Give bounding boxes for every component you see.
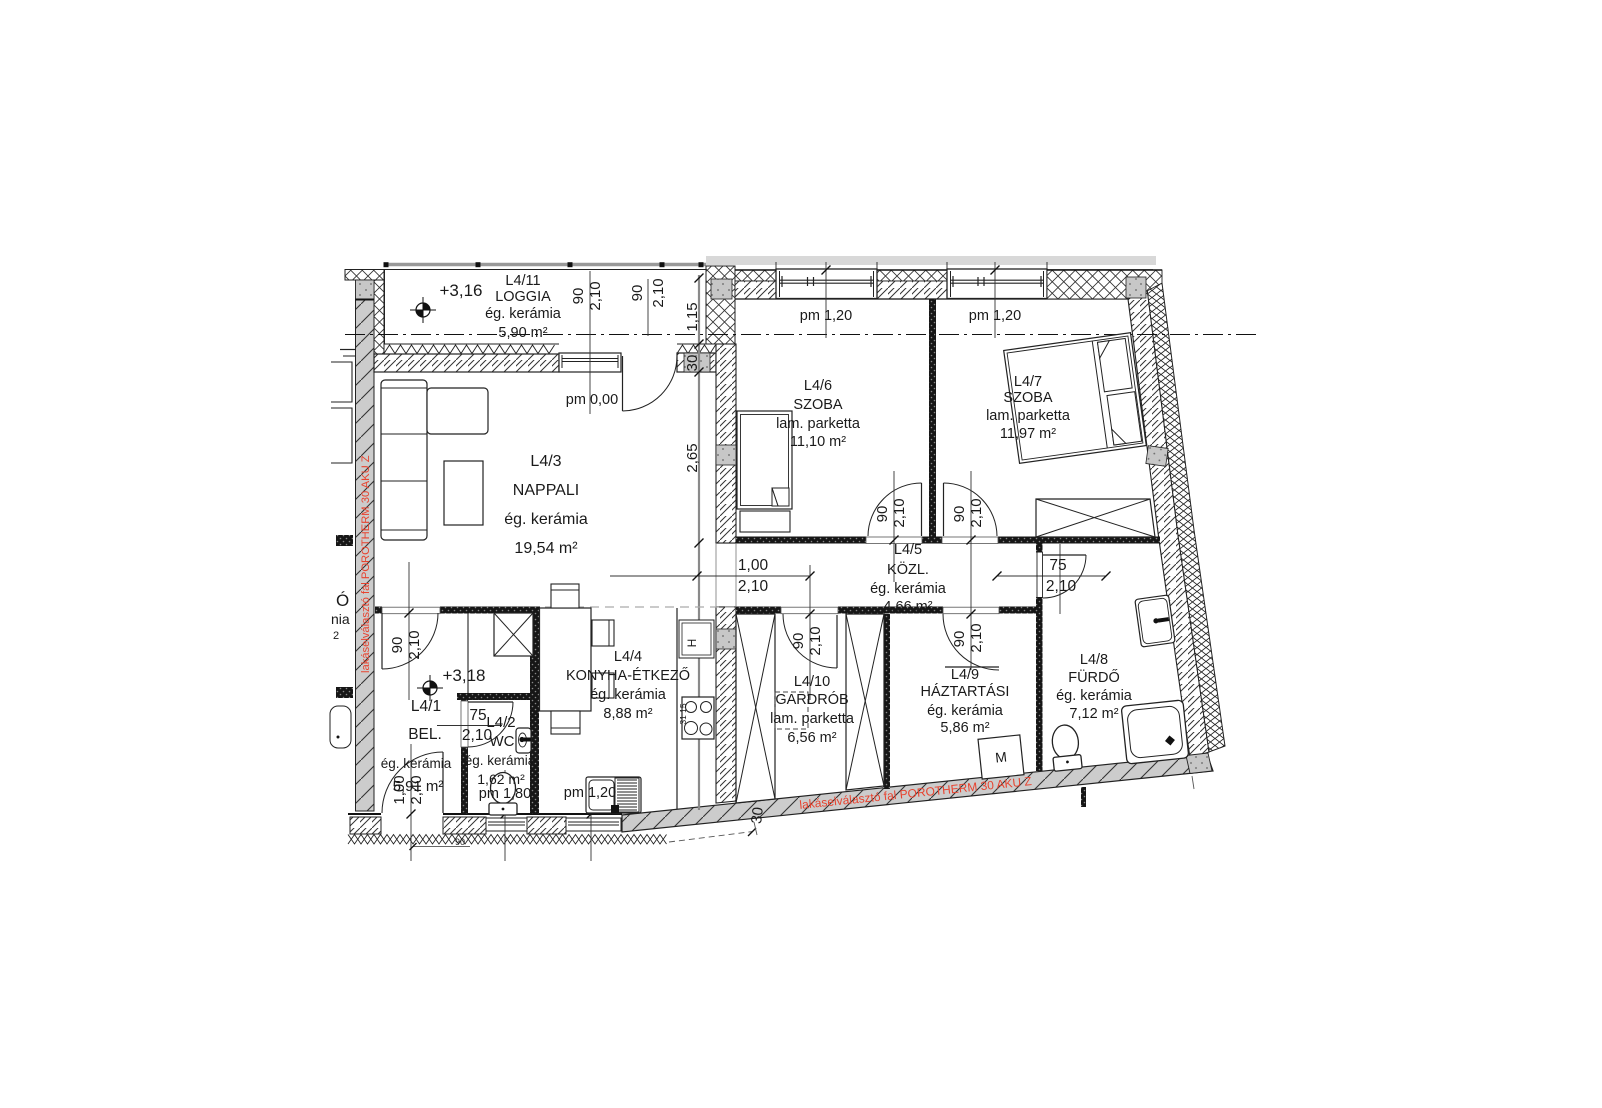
svg-text:lam. parketta: lam. parketta bbox=[770, 711, 855, 727]
svg-text:2,65: 2,65 bbox=[684, 443, 701, 472]
svg-text:+3,16: +3,16 bbox=[439, 281, 482, 300]
svg-text:7,12 m²: 7,12 m² bbox=[1069, 706, 1118, 722]
svg-text:pm 1,80: pm 1,80 bbox=[479, 786, 531, 802]
svg-text:90: 90 bbox=[790, 633, 807, 650]
svg-text:L4/4: L4/4 bbox=[614, 649, 642, 665]
svg-text:L4/1: L4/1 bbox=[411, 698, 441, 715]
svg-text:90: 90 bbox=[629, 285, 646, 302]
svg-text:19,54 m²: 19,54 m² bbox=[514, 540, 578, 557]
svg-text:L4/7: L4/7 bbox=[1014, 374, 1042, 390]
svg-text:KONYHA-ÉTKEZŐ: KONYHA-ÉTKEZŐ bbox=[566, 667, 690, 684]
svg-text:90: 90 bbox=[951, 506, 968, 523]
svg-text:pm 1,20: pm 1,20 bbox=[800, 308, 852, 324]
svg-text:6,56 m²: 6,56 m² bbox=[787, 730, 836, 746]
svg-text:2,10: 2,10 bbox=[968, 498, 985, 527]
svg-text:L4/3: L4/3 bbox=[530, 453, 561, 470]
svg-text:2,10: 2,10 bbox=[406, 630, 423, 659]
svg-text:2: 2 bbox=[333, 630, 339, 642]
svg-text:WC: WC bbox=[490, 733, 515, 750]
svg-text:90: 90 bbox=[455, 837, 465, 847]
svg-text:L4/11: L4/11 bbox=[505, 273, 540, 289]
svg-text:LOGGIA: LOGGIA bbox=[495, 289, 551, 305]
svg-text:NAPPALI: NAPPALI bbox=[513, 482, 579, 499]
svg-text:L4/5: L4/5 bbox=[894, 542, 922, 558]
svg-text:75: 75 bbox=[1049, 557, 1066, 574]
svg-text:1,00: 1,00 bbox=[738, 557, 769, 574]
svg-text:1,62 m²: 1,62 m² bbox=[477, 771, 525, 787]
svg-text:pm 0,00: pm 0,00 bbox=[566, 392, 618, 408]
svg-text:2,10: 2,10 bbox=[587, 281, 604, 310]
svg-text:2,10: 2,10 bbox=[968, 623, 985, 652]
svg-text:5,90 m²: 5,90 m² bbox=[498, 325, 547, 341]
svg-text:ég. kerámia: ég. kerámia bbox=[381, 756, 452, 771]
svg-text:2,10: 2,10 bbox=[650, 278, 667, 307]
svg-text:2,10: 2,10 bbox=[1046, 578, 1077, 595]
svg-text:BEL.: BEL. bbox=[408, 726, 442, 743]
svg-text:1,15: 1,15 bbox=[684, 302, 701, 331]
svg-text:30: 30 bbox=[748, 806, 767, 825]
svg-text:L4/10: L4/10 bbox=[794, 674, 830, 690]
svg-text:2,10: 2,10 bbox=[738, 578, 769, 595]
svg-text:2,10: 2,10 bbox=[462, 727, 493, 744]
svg-text:GARDRÓB: GARDRÓB bbox=[775, 691, 848, 708]
svg-text:KÖZL.: KÖZL. bbox=[887, 560, 929, 578]
svg-text:4,66 m²: 4,66 m² bbox=[883, 599, 932, 615]
svg-text:ég. kerámia: ég. kerámia bbox=[485, 306, 562, 322]
svg-text:L4/6: L4/6 bbox=[804, 378, 832, 394]
svg-text:L4/8: L4/8 bbox=[1080, 652, 1108, 668]
svg-text:ég. kerámia: ég. kerámia bbox=[590, 687, 667, 703]
svg-text:ég. kerámia: ég. kerámia bbox=[465, 753, 536, 768]
svg-text:SZOBA: SZOBA bbox=[1003, 390, 1052, 406]
svg-text:90: 90 bbox=[389, 637, 406, 654]
svg-text:31 15: 31 15 bbox=[678, 703, 688, 725]
svg-text:ég. kerámia: ég. kerámia bbox=[1056, 688, 1133, 704]
svg-text:90: 90 bbox=[570, 288, 587, 305]
svg-text:Ó: Ó bbox=[336, 591, 349, 610]
svg-text:1,00: 1,00 bbox=[391, 775, 408, 804]
svg-text:75: 75 bbox=[469, 707, 486, 724]
svg-text:lakáselválasztó fal POROTHERM: lakáselválasztó fal POROTHERM 30 AKU Z bbox=[360, 455, 372, 673]
svg-text:+3,18: +3,18 bbox=[442, 666, 485, 685]
svg-text:90: 90 bbox=[874, 506, 891, 523]
svg-text:L4/9: L4/9 bbox=[951, 667, 979, 683]
svg-text:lam. parketta: lam. parketta bbox=[776, 416, 861, 432]
svg-text:ég. kerámia: ég. kerámia bbox=[504, 511, 588, 528]
svg-text:30: 30 bbox=[684, 355, 701, 372]
svg-text:90: 90 bbox=[951, 631, 968, 648]
svg-text:5,86 m²: 5,86 m² bbox=[940, 720, 989, 736]
svg-text:11,10 m²: 11,10 m² bbox=[790, 434, 846, 450]
svg-text:pm 1,20: pm 1,20 bbox=[969, 308, 1021, 324]
svg-text:lam. parketta: lam. parketta bbox=[986, 408, 1071, 424]
svg-text:M: M bbox=[994, 748, 1007, 765]
svg-text:2,10: 2,10 bbox=[807, 626, 824, 655]
svg-text:HÁZTARTÁSI: HÁZTARTÁSI bbox=[921, 683, 1010, 700]
svg-text:11,97 m²: 11,97 m² bbox=[1000, 426, 1056, 442]
svg-text:FÜRDŐ: FÜRDŐ bbox=[1068, 668, 1120, 686]
svg-text:2,10: 2,10 bbox=[891, 498, 908, 527]
svg-text:H: H bbox=[685, 639, 699, 648]
svg-text:8,88 m²: 8,88 m² bbox=[603, 706, 652, 722]
svg-text:ég. kerámia: ég. kerámia bbox=[870, 581, 947, 597]
svg-text:nia: nia bbox=[331, 611, 350, 627]
svg-text:SZOBA: SZOBA bbox=[793, 397, 842, 413]
svg-text:pm 1,20: pm 1,20 bbox=[564, 785, 616, 801]
svg-text:2,40: 2,40 bbox=[408, 775, 425, 804]
svg-text:ég. kerámia: ég. kerámia bbox=[927, 703, 1004, 719]
